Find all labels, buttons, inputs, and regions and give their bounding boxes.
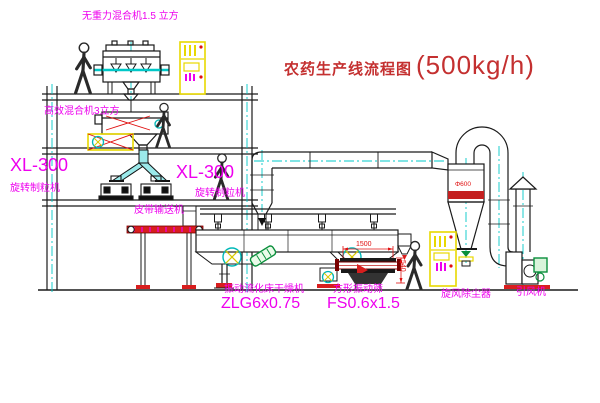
label-cyclone: 旋风除尘器 [441,290,491,301]
label-granulator-left: 旋转制粒机 [10,184,60,195]
person-ground [407,242,421,290]
control-cabinet-2 [430,232,456,286]
label-sieve-model: FS0.6x1.5 [327,296,400,313]
belt-conveyor [127,206,203,289]
dim-sieve-length: 1500 [356,241,372,248]
exhaust-duct [250,152,448,230]
label-dryer-name: 振动流化床干燥机 [224,285,304,296]
gravity-free-mixer [94,41,169,94]
dryer-outlet [398,234,411,246]
title-text: 农药生产线流程图 [284,58,412,79]
label-granulator-mid: 旋转制粒机 [195,189,245,200]
control-cabinet-1 [180,42,205,94]
cad-drawing: 农药生产线流程图 (500kg/h) 无重力混合机1.5 立方 高效混合机3立方… [0,0,600,403]
label-xl300-left: XL-300 [10,156,68,175]
fan-motor [534,258,547,272]
drawing-title: 农药生产线流程图 (500kg/h) [284,50,535,81]
label-xl300-mid: XL-300 [176,163,234,182]
cyclone-band [448,191,484,199]
title-capacity: (500kg/h) [416,50,535,81]
dim-cyclone-note: Φ600 [455,182,471,189]
person-roof [76,43,91,93]
label-sieve-name: 方形振动筛 [333,285,383,296]
label-high-eff-mixer: 高效混合机3立方 [44,107,120,118]
induced-draft-fan [504,252,550,289]
high-efficiency-mixer [88,94,168,150]
label-fan: 引风机 [516,288,546,299]
label-dryer-model: ZLG6x0.75 [221,296,300,313]
label-belt-conveyor: 皮带输送机 [134,206,184,217]
label-gravity-mixer: 无重力混合机1.5 立方 [82,12,179,23]
dim-sieve-height: 540 [399,260,406,272]
